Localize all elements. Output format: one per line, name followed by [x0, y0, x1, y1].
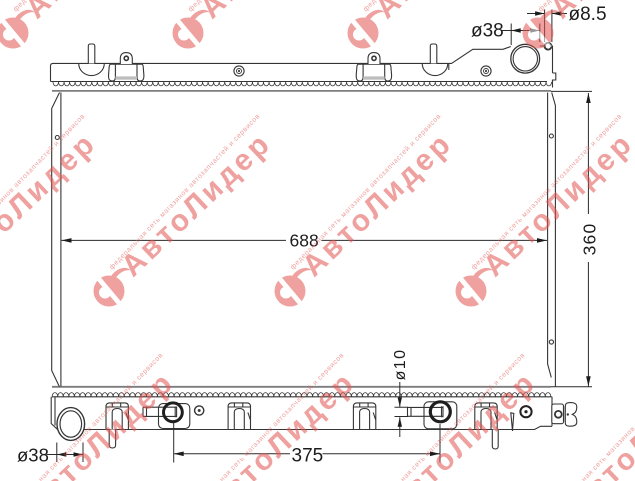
svg-text:360: 360	[579, 223, 599, 256]
svg-text:ø10: ø10	[392, 349, 409, 381]
svg-text:ø38: ø38	[471, 21, 504, 42]
svg-text:ø38: ø38	[17, 445, 49, 466]
